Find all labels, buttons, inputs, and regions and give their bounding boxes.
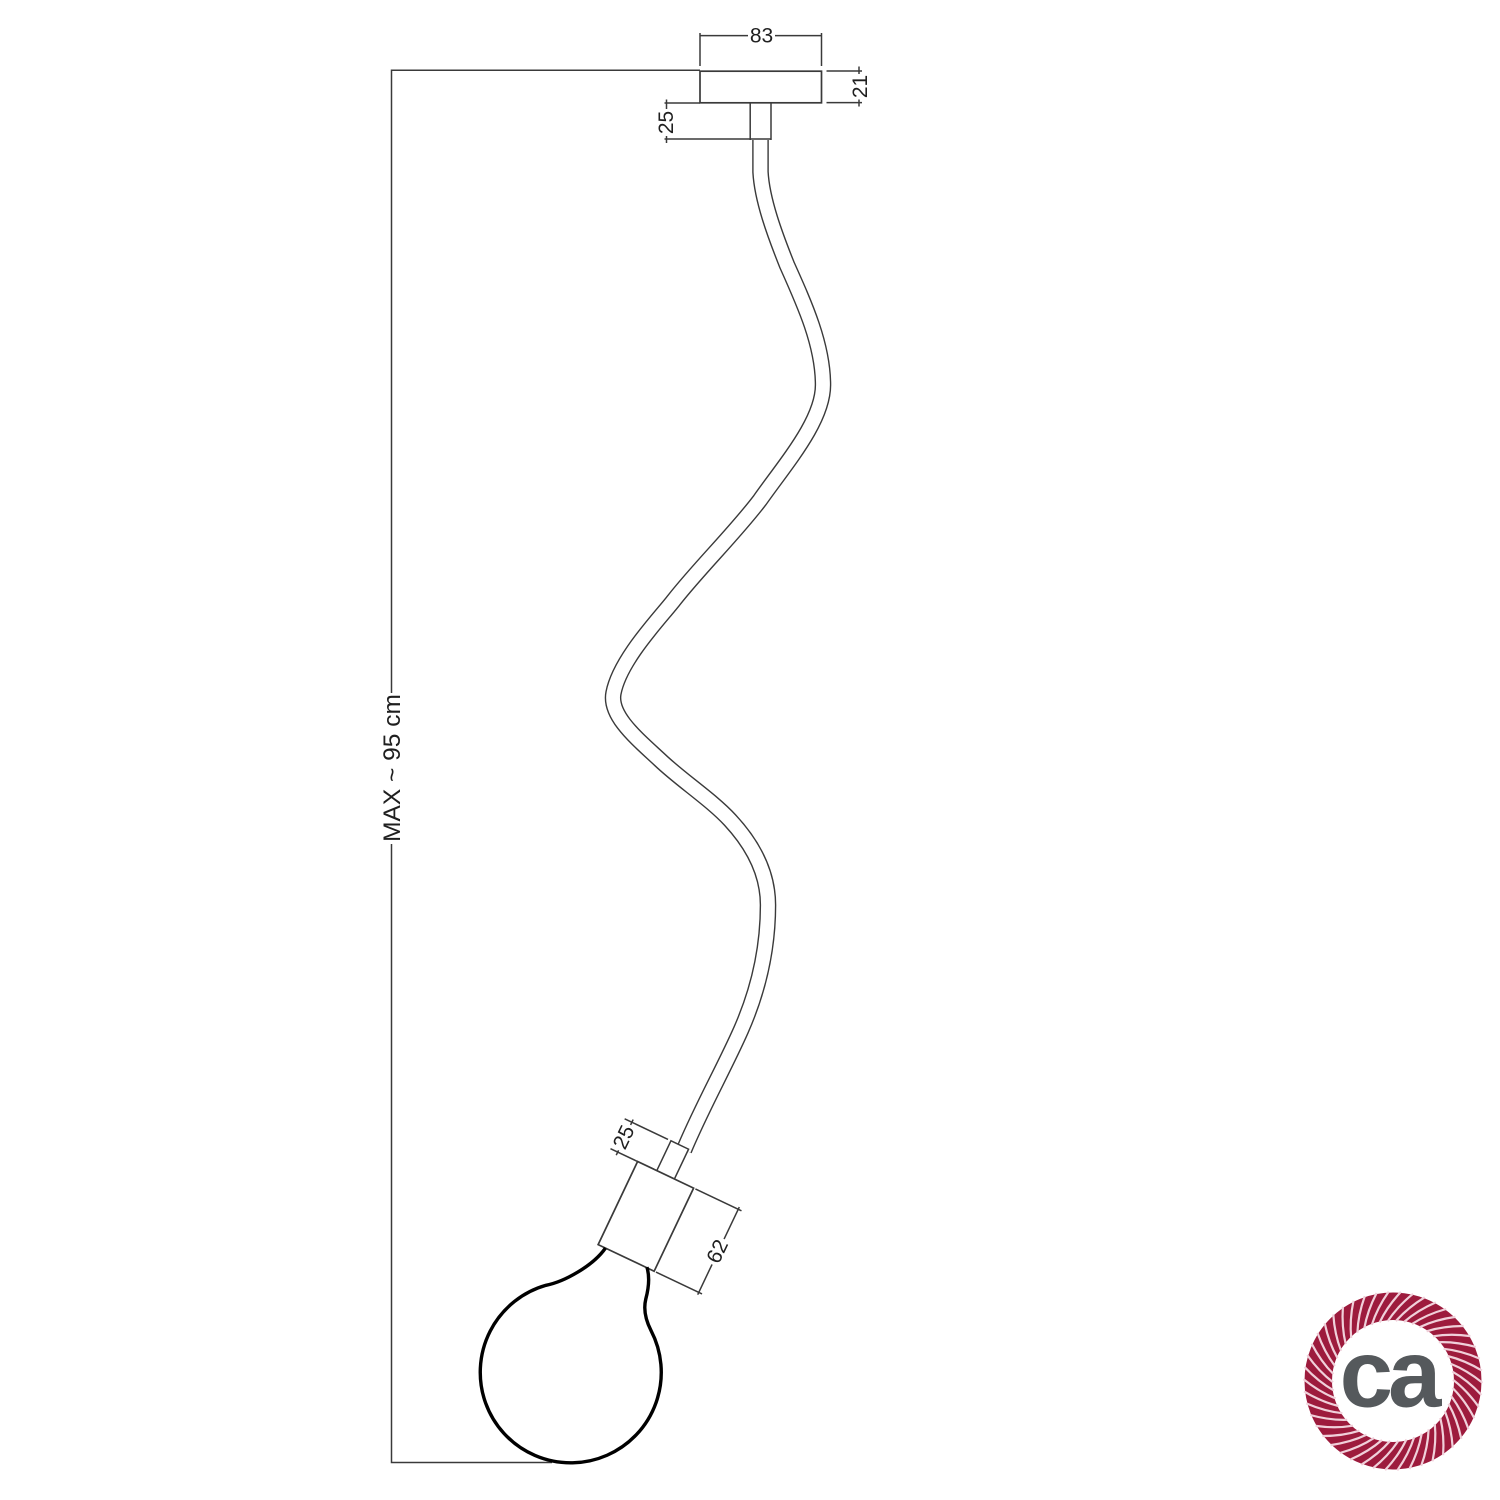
svg-text:MAX ~ 95 cm: MAX ~ 95 cm [379, 694, 406, 842]
svg-text:83: 83 [750, 24, 773, 47]
svg-text:21: 21 [849, 75, 872, 98]
svg-text:ca: ca [1340, 1321, 1442, 1428]
svg-text:25: 25 [655, 111, 678, 134]
